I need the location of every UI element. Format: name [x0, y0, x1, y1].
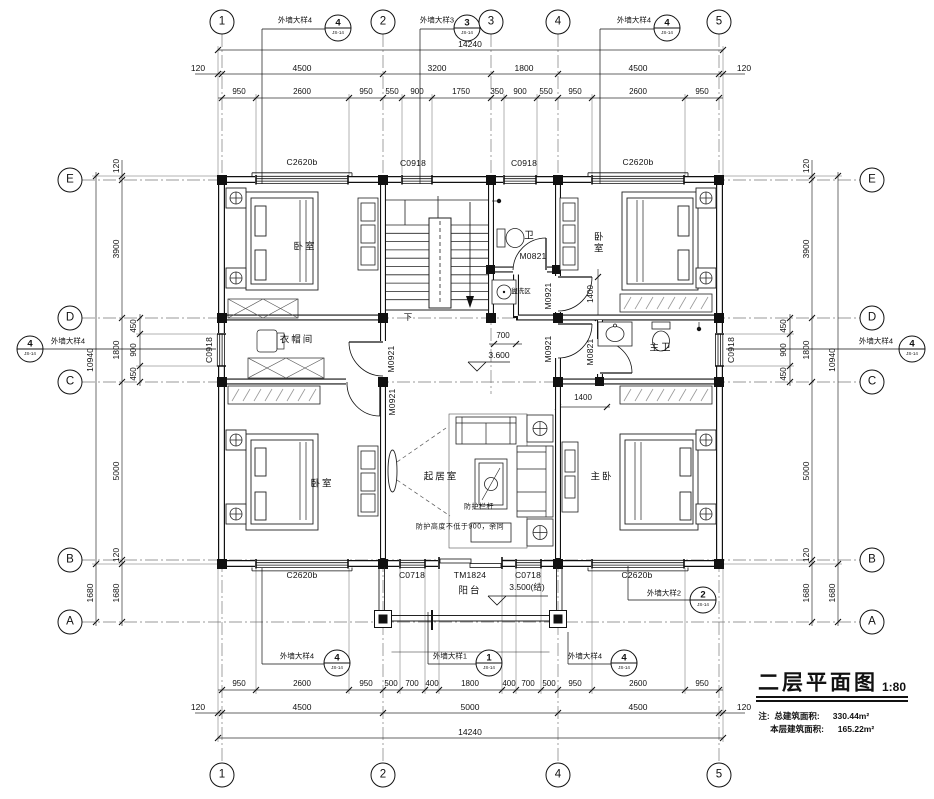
- grid-row-label: D: [868, 312, 876, 324]
- callout-number: 4: [909, 339, 914, 349]
- dim-label: 1800: [112, 341, 121, 360]
- furniture-hatched-wardrobes: [228, 294, 712, 404]
- room-label-cloakroom: 衣帽间: [280, 335, 315, 345]
- dim-label: 120: [737, 703, 751, 712]
- dim-label: 1680: [802, 584, 811, 603]
- dim-label: 700: [405, 680, 418, 688]
- dim-label: 4500: [629, 64, 648, 73]
- dim-label: 1400: [574, 394, 592, 402]
- callout-label: 外墙大样4: [278, 16, 312, 24]
- callout-number: 3: [464, 18, 469, 28]
- floor-area-label: 本层建筑面积:: [770, 725, 824, 734]
- dim-label: 4500: [293, 64, 312, 73]
- stairs: [386, 196, 488, 310]
- dim-label: 14240: [458, 728, 482, 737]
- balcony-structure: [379, 567, 562, 652]
- level-mark-label: 3.600: [488, 351, 509, 360]
- dim-label: 450: [780, 367, 788, 380]
- callout-label: 外墙大样4: [568, 652, 602, 660]
- room-label-master-bath: 主卫: [649, 343, 672, 353]
- dim-label: 950: [695, 88, 708, 96]
- room-label-wash-area: 盥洗区: [511, 289, 531, 296]
- total-area-value: 330.44m²: [833, 712, 869, 721]
- grid-row-label: B: [66, 554, 74, 566]
- dim-label: 1800: [802, 341, 811, 360]
- dim-label: 900: [513, 88, 526, 96]
- dim-label: 450: [780, 319, 788, 332]
- room-label-bath: 卫: [524, 231, 536, 241]
- dim-label: 120: [112, 548, 121, 562]
- callout-sheet-ref: JS-14: [618, 666, 630, 671]
- grid-row-label: B: [868, 554, 876, 566]
- window-tag: C0718: [399, 571, 425, 580]
- dim-label: 450: [130, 367, 138, 380]
- title-underline: [756, 696, 908, 698]
- dim-label: 900: [410, 88, 423, 96]
- grid-col-label: 2: [380, 769, 386, 781]
- dim-label: 2600: [629, 88, 647, 96]
- floor-area-value: 165.22m²: [838, 725, 874, 734]
- door-tag: M0921: [388, 389, 397, 416]
- dim-label: 1800: [515, 64, 534, 73]
- dim-label: 700: [496, 332, 509, 340]
- dim-label: 550: [385, 88, 398, 96]
- room-label-balcony: 阳台: [458, 586, 481, 596]
- dim-label: 3200: [428, 64, 447, 73]
- dim-label: 500: [542, 680, 555, 688]
- window-tag: C0718: [515, 571, 541, 580]
- grid-col-label: 4: [555, 16, 561, 28]
- callout-sheet-ref: JS-14: [906, 352, 918, 357]
- grid-row-label: C: [66, 376, 74, 388]
- dim-label: 900: [130, 343, 138, 356]
- dim-label: 10940: [86, 348, 95, 372]
- grid-row-label: A: [66, 616, 74, 628]
- grid-row-label: E: [868, 174, 876, 186]
- grid-col-label: 3: [488, 16, 494, 28]
- callout-sheet-ref: JS-14: [483, 666, 495, 671]
- room-label-living: 起居室: [424, 472, 459, 482]
- note-prefix: 注:: [758, 712, 769, 721]
- callout-sheet-ref: JS-14: [24, 352, 36, 357]
- dim-label: 120: [191, 703, 205, 712]
- grid-col-label: 1: [219, 769, 225, 781]
- callout-label: 外墙大样3: [420, 16, 454, 24]
- title-underline: [756, 700, 908, 702]
- dim-label: 950: [568, 680, 581, 688]
- balcony-posts: [375, 611, 567, 628]
- window-tag: C0918: [511, 159, 537, 168]
- floor-plan-canvas: 1 2 3 4 5 1 2 4 5 E D C B A E D C B A 外墙…: [0, 0, 934, 799]
- callout-label: 外墙大样4: [617, 16, 651, 24]
- callout-number: 4: [621, 653, 626, 663]
- dim-label: 4500: [293, 703, 312, 712]
- dim-label: 350: [490, 88, 503, 96]
- callout-number: 4: [334, 653, 339, 663]
- dim-label: 450: [130, 319, 138, 332]
- dimension-lines: [96, 50, 838, 738]
- dim-label: 550: [539, 88, 552, 96]
- callout-label: 外墙大样4: [51, 337, 85, 345]
- callout-label: 外墙大样4: [280, 652, 314, 660]
- window-tag: C0918: [400, 159, 426, 168]
- note-railing-height: 防护高度不低于900，余同: [416, 524, 504, 531]
- door-tag: M0821: [586, 339, 595, 366]
- callout-number: 2: [700, 590, 705, 600]
- dim-label: 2600: [293, 680, 311, 688]
- dim-label: 120: [802, 159, 811, 173]
- note-railing: 防护栏杆: [464, 504, 494, 511]
- door-tag: M0921: [544, 336, 553, 363]
- callout-number: 4: [664, 18, 669, 28]
- door-tag: M0921: [544, 283, 553, 310]
- dim-label: 1750: [452, 88, 470, 96]
- dim-label: 3900: [112, 240, 121, 259]
- dim-label: 700: [521, 680, 534, 688]
- grid-bubbles: [58, 10, 884, 787]
- dim-label: 120: [802, 548, 811, 562]
- total-area-label: 总建筑面积:: [774, 712, 819, 721]
- dim-label: 950: [232, 680, 245, 688]
- callout-sheet-ref: JS-14: [461, 31, 473, 36]
- callout-number: 4: [335, 18, 340, 28]
- grid-col-label: 5: [716, 769, 722, 781]
- dim-label: 1680: [112, 584, 121, 603]
- grid-row-label: C: [868, 376, 876, 388]
- dim-label: 500: [384, 680, 397, 688]
- callout-label: 外墙大样1: [433, 652, 467, 660]
- grid-row-label: A: [868, 616, 876, 628]
- room-label-bedroom: 卧室: [293, 242, 316, 252]
- grid-col-label: 2: [380, 16, 386, 28]
- window-tag: C2620b: [287, 158, 318, 167]
- drawing-scale: 1:80: [882, 681, 906, 693]
- extension-lines: [92, 46, 842, 742]
- stair-down-label: 下: [404, 313, 413, 322]
- grid-col-label: 1: [219, 16, 225, 28]
- window-tag: C2620b: [623, 158, 654, 167]
- dim-label: 10940: [828, 348, 837, 372]
- dim-label: 5000: [112, 462, 121, 481]
- callout-label: 外墙大样2: [647, 589, 681, 597]
- level-mark-label: 3.500(结): [509, 583, 544, 592]
- window-tag: C0918: [727, 337, 736, 363]
- dim-label: 2600: [629, 680, 647, 688]
- dim-label: 1800: [461, 680, 479, 688]
- grid-row-label: D: [66, 312, 74, 324]
- dim-label: 1680: [86, 584, 95, 603]
- dim-label: 950: [359, 680, 372, 688]
- callout-label: 外墙大样4: [859, 337, 893, 345]
- dim-label: 400: [502, 680, 515, 688]
- grid-col-label: 5: [716, 16, 722, 28]
- callout-sheet-ref: JS-14: [331, 666, 343, 671]
- dim-label: 950: [232, 88, 245, 96]
- dim-label: 5000: [461, 703, 480, 712]
- grid-col-label: 4: [555, 769, 561, 781]
- callout-sheet-ref: JS-14: [697, 603, 709, 608]
- window-tag: C2620b: [287, 571, 318, 580]
- drawing-title: 二层平面图: [758, 673, 878, 694]
- window-tag: C0918: [205, 337, 214, 363]
- callout-sheet-ref: JS-14: [332, 31, 344, 36]
- room-label-bedroom: 卧室: [310, 479, 333, 489]
- dim-label: 3900: [802, 240, 811, 259]
- dimension-ticks: [93, 47, 841, 741]
- dim-label: 950: [359, 88, 372, 96]
- dim-label: 120: [112, 159, 121, 173]
- dim-label: 14240: [458, 40, 482, 49]
- dim-label: 120: [737, 64, 751, 73]
- dim-label: 1680: [828, 584, 837, 603]
- dim-label: 950: [568, 88, 581, 96]
- dim-label: 400: [425, 680, 438, 688]
- room-label-bedroom: 卧室: [592, 232, 602, 255]
- grid-row-label: E: [66, 174, 74, 186]
- callout-number: 1: [486, 653, 491, 663]
- dim-label: 2600: [293, 88, 311, 96]
- callout-sheet-ref: JS-14: [661, 31, 673, 36]
- dim-label: 1400: [587, 285, 595, 303]
- door-tag: M0921: [387, 346, 396, 373]
- dim-label: 4500: [629, 703, 648, 712]
- window-tag: C2620b: [622, 571, 653, 580]
- dim-label: 5000: [802, 462, 811, 481]
- room-label-master-bedroom: 主卧: [590, 472, 613, 482]
- grid-lines: [82, 34, 860, 763]
- dim-label: 120: [191, 64, 205, 73]
- callout-number: 4: [27, 339, 32, 349]
- dim-label: 900: [780, 343, 788, 356]
- door-tag: TM1824: [454, 571, 486, 580]
- dim-label: 950: [695, 680, 708, 688]
- door-tag: M0821: [520, 252, 547, 261]
